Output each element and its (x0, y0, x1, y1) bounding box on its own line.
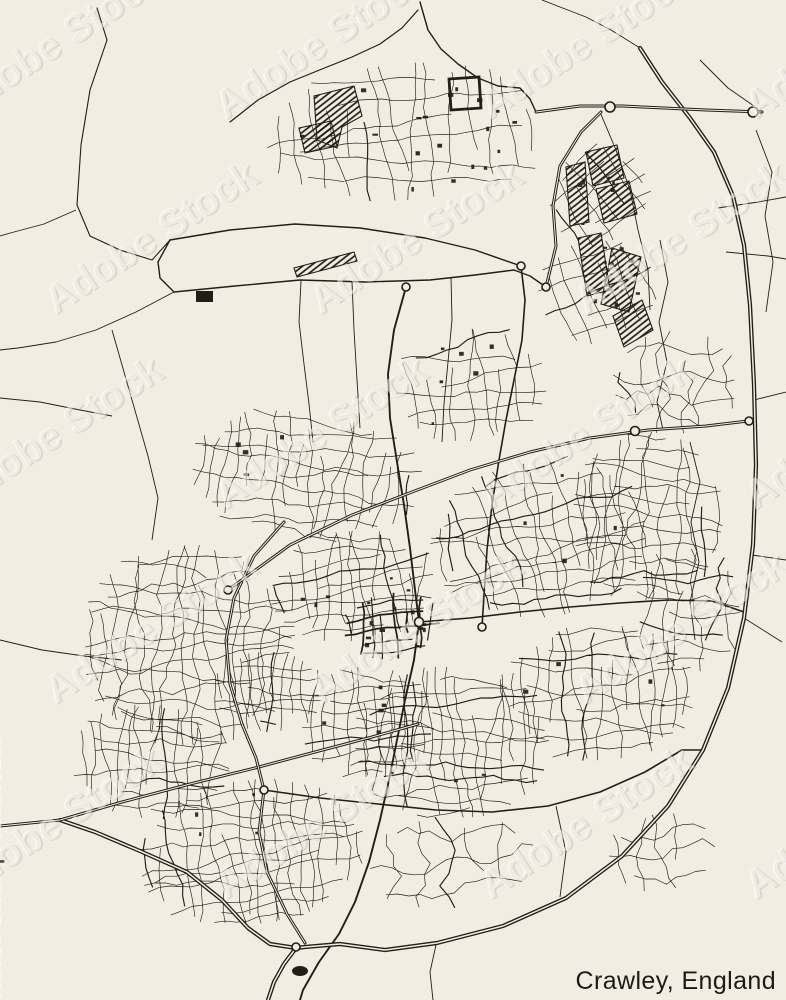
map-title: Crawley, England (576, 967, 776, 996)
stock-map-image: Adobe StockAdobe StockAdobe StockAdobe S… (0, 0, 786, 1000)
watermark-stock-id: Adobe Stock | #728806217 (0, 736, 6, 998)
city-road-map: Adobe StockAdobe StockAdobe StockAdobe S… (0, 0, 786, 1000)
